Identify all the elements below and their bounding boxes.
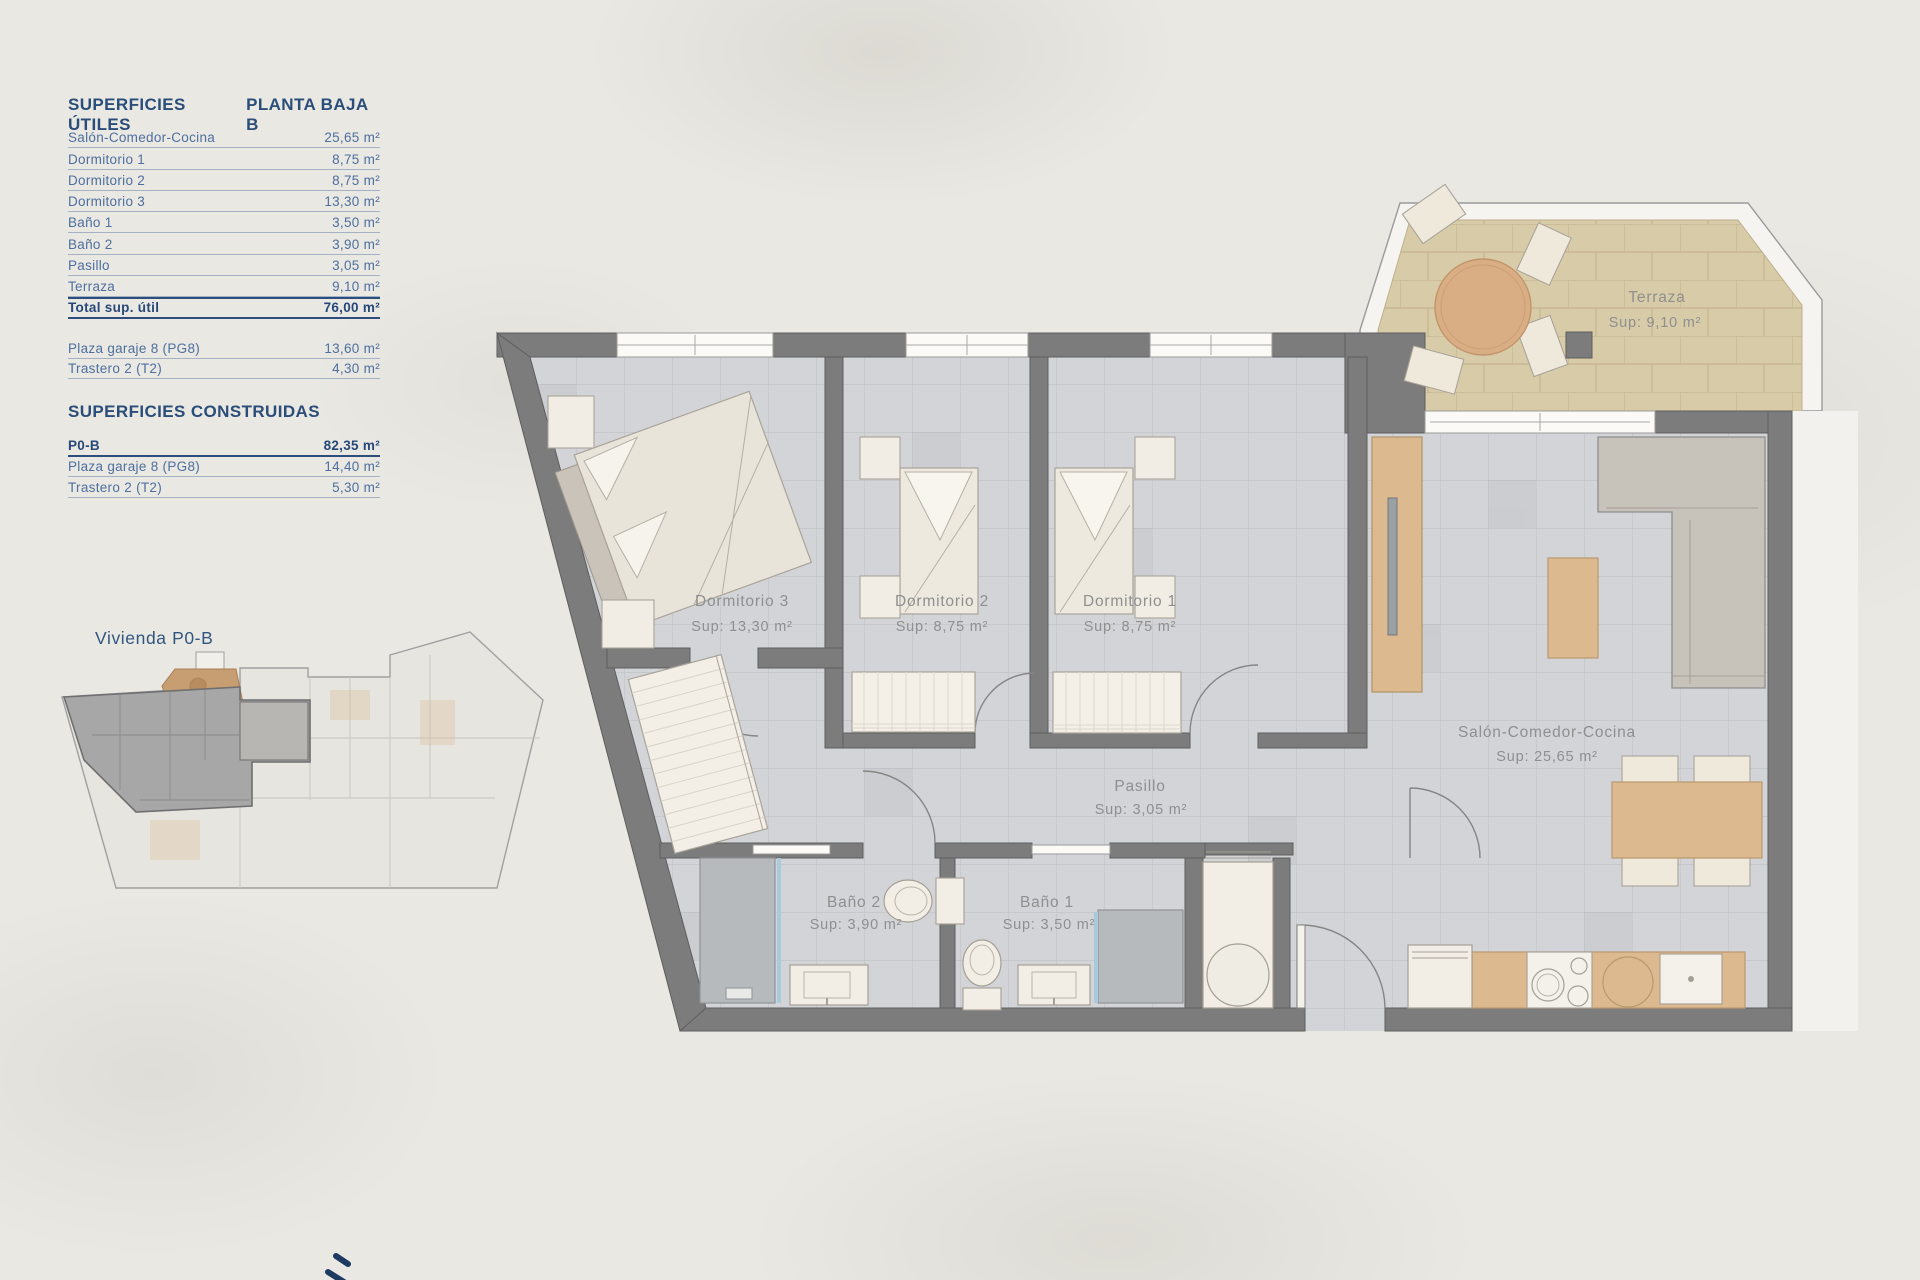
table-row: P0-B82,35 m² bbox=[68, 436, 380, 457]
row-value: 14,40 m² bbox=[324, 459, 380, 474]
row-label: Terraza bbox=[68, 279, 115, 294]
label-salon: Salón-Comedor-Cocina bbox=[1458, 724, 1636, 741]
bano1-toilet-tank bbox=[963, 988, 1001, 1010]
water-heater bbox=[1207, 944, 1269, 1006]
bed2-wardrobe bbox=[852, 672, 975, 732]
label-terraza: Terraza bbox=[1628, 289, 1685, 306]
label-pasillo-sup: Sup: 3,05 m² bbox=[1095, 802, 1188, 818]
label-pasillo: Pasillo bbox=[1114, 778, 1165, 795]
row-label: Dormitorio 2 bbox=[68, 173, 145, 188]
bed1-wardrobe bbox=[1053, 672, 1181, 733]
row-label: Dormitorio 1 bbox=[68, 152, 145, 167]
neighbor-unit-area bbox=[1792, 411, 1858, 1031]
bed3-nightstand bbox=[548, 396, 594, 448]
dining-chair bbox=[1622, 756, 1678, 784]
tv-screen bbox=[1388, 498, 1397, 635]
row-label: Baño 2 bbox=[68, 237, 113, 252]
kitchen bbox=[1408, 945, 1745, 1008]
table-row: Dormitorio 313,30 m² bbox=[68, 191, 380, 212]
label-salon-sup: Sup: 25,65 m² bbox=[1496, 749, 1597, 765]
row-label: Trastero 2 (T2) bbox=[68, 480, 162, 495]
table-row: Plaza garaje 8 (PG8)13,60 m² bbox=[68, 338, 380, 359]
row-label: Pasillo bbox=[68, 258, 110, 273]
row-value: 25,65 m² bbox=[324, 130, 380, 145]
table-row: Plaza garaje 8 (PG8)14,40 m² bbox=[68, 457, 380, 478]
overview-unit-salon bbox=[240, 702, 308, 760]
label-dormitorio2: Dormitorio 2 bbox=[895, 593, 989, 610]
cooktop bbox=[1527, 952, 1592, 1008]
logo-mark bbox=[328, 1256, 348, 1280]
construidas-table: P0-B82,35 m² Plaza garaje 8 (PG8)14,40 m… bbox=[68, 436, 380, 498]
label-bano1-sup: Sup: 3,50 m² bbox=[1003, 917, 1096, 933]
table-row: Salón-Comedor-Cocina25,65 m² bbox=[68, 127, 380, 148]
label-terraza-sup: Sup: 9,10 m² bbox=[1609, 315, 1702, 331]
table-row: Dormitorio 28,75 m² bbox=[68, 170, 380, 191]
row-label: Total sup. útil bbox=[68, 300, 159, 315]
terrace-column bbox=[1566, 332, 1592, 358]
utility-closet bbox=[1203, 852, 1273, 1008]
total-row: Total sup. útil76,00 m² bbox=[68, 297, 380, 318]
overview-accent bbox=[420, 700, 455, 745]
bed1-nightstand bbox=[1135, 437, 1175, 479]
label-dormitorio2-sup: Sup: 8,75 m² bbox=[896, 619, 989, 635]
row-value: 13,30 m² bbox=[324, 194, 380, 209]
table-row: Trastero 2 (T2)4,30 m² bbox=[68, 359, 380, 380]
table-row: Baño 13,50 m² bbox=[68, 212, 380, 233]
row-label: Dormitorio 3 bbox=[68, 194, 145, 209]
terrace-table bbox=[1435, 259, 1531, 355]
construidas-title: SUPERFICIES CONSTRUIDAS bbox=[68, 402, 320, 422]
table-row: Trastero 2 (T2)5,30 m² bbox=[68, 477, 380, 498]
label-dormitorio3-sup: Sup: 13,30 m² bbox=[691, 619, 792, 635]
row-value: 5,30 m² bbox=[332, 480, 380, 495]
dining-table bbox=[1612, 782, 1762, 858]
annex-table: Plaza garaje 8 (PG8)13,60 m² Trastero 2 … bbox=[68, 338, 380, 379]
kitchen-sink-drain bbox=[1688, 976, 1694, 982]
table-row: Baño 23,90 m² bbox=[68, 233, 380, 254]
bano2-toilet-bowl bbox=[884, 880, 932, 922]
row-value: 3,50 m² bbox=[332, 215, 380, 230]
bano1-toilet-bowl bbox=[963, 940, 1001, 986]
bano1-shower-tray bbox=[1098, 910, 1183, 1003]
dining-chair bbox=[1694, 756, 1750, 784]
row-value: 9,10 m² bbox=[332, 279, 380, 294]
bano2-shower-tray bbox=[700, 858, 775, 1003]
row-value: 76,00 m² bbox=[324, 300, 380, 315]
label-dormitorio3: Dormitorio 3 bbox=[695, 593, 789, 610]
label-bano1: Baño 1 bbox=[1020, 894, 1074, 911]
bano2-toilet-tank bbox=[936, 878, 964, 924]
row-value: 82,35 m² bbox=[324, 438, 380, 453]
row-label: Plaza garaje 8 (PG8) bbox=[68, 341, 200, 356]
overview-mini-plan bbox=[62, 632, 543, 888]
entry-door-leaf bbox=[1297, 925, 1305, 1008]
bano2-sink bbox=[790, 965, 868, 1005]
row-value: 3,90 m² bbox=[332, 237, 380, 252]
row-label: Trastero 2 (T2) bbox=[68, 361, 162, 376]
label-bano2: Baño 2 bbox=[827, 894, 881, 911]
table-row: Pasillo3,05 m² bbox=[68, 255, 380, 276]
row-value: 3,05 m² bbox=[332, 258, 380, 273]
fridge bbox=[1408, 945, 1472, 1008]
dining-chair bbox=[1622, 858, 1678, 886]
bano2-pocket-door bbox=[753, 845, 830, 854]
row-label: Salón-Comedor-Cocina bbox=[68, 130, 215, 145]
construidas-header: SUPERFICIES CONSTRUIDAS bbox=[68, 402, 380, 422]
row-value: 4,30 m² bbox=[332, 361, 380, 376]
row-label: P0-B bbox=[68, 438, 100, 453]
bed3-nightstand bbox=[602, 600, 654, 648]
coffee-table bbox=[1548, 558, 1598, 658]
utiles-table: Salón-Comedor-Cocina25,65 m² Dormitorio … bbox=[68, 127, 380, 319]
overview-accent bbox=[150, 820, 200, 860]
row-value: 8,75 m² bbox=[332, 152, 380, 167]
label-dormitorio1: Dormitorio 1 bbox=[1083, 593, 1177, 610]
row-label: Baño 1 bbox=[68, 215, 113, 230]
overview-accent bbox=[330, 690, 370, 720]
bed2-nightstand bbox=[860, 437, 900, 479]
table-row: Terraza9,10 m² bbox=[68, 276, 380, 297]
label-bano2-sup: Sup: 3,90 m² bbox=[810, 917, 903, 933]
overview-unit-label: Vivienda P0-B bbox=[95, 628, 213, 649]
overview-stairwell bbox=[196, 652, 224, 670]
row-value: 8,75 m² bbox=[332, 173, 380, 188]
row-value: 13,60 m² bbox=[324, 341, 380, 356]
bano1-pocket-door bbox=[1032, 845, 1110, 854]
table-row: Dormitorio 18,75 m² bbox=[68, 148, 380, 169]
bano2-shower-screen bbox=[777, 858, 781, 1003]
main-floor-plan: Dormitorio 3 Sup: 13,30 m² Dormitorio 2 … bbox=[328, 184, 1858, 1280]
row-label: Plaza garaje 8 (PG8) bbox=[68, 459, 200, 474]
bano2-shower-drain bbox=[726, 988, 752, 999]
label-dormitorio1-sup: Sup: 8,75 m² bbox=[1084, 619, 1177, 635]
dining-chair bbox=[1694, 858, 1750, 886]
